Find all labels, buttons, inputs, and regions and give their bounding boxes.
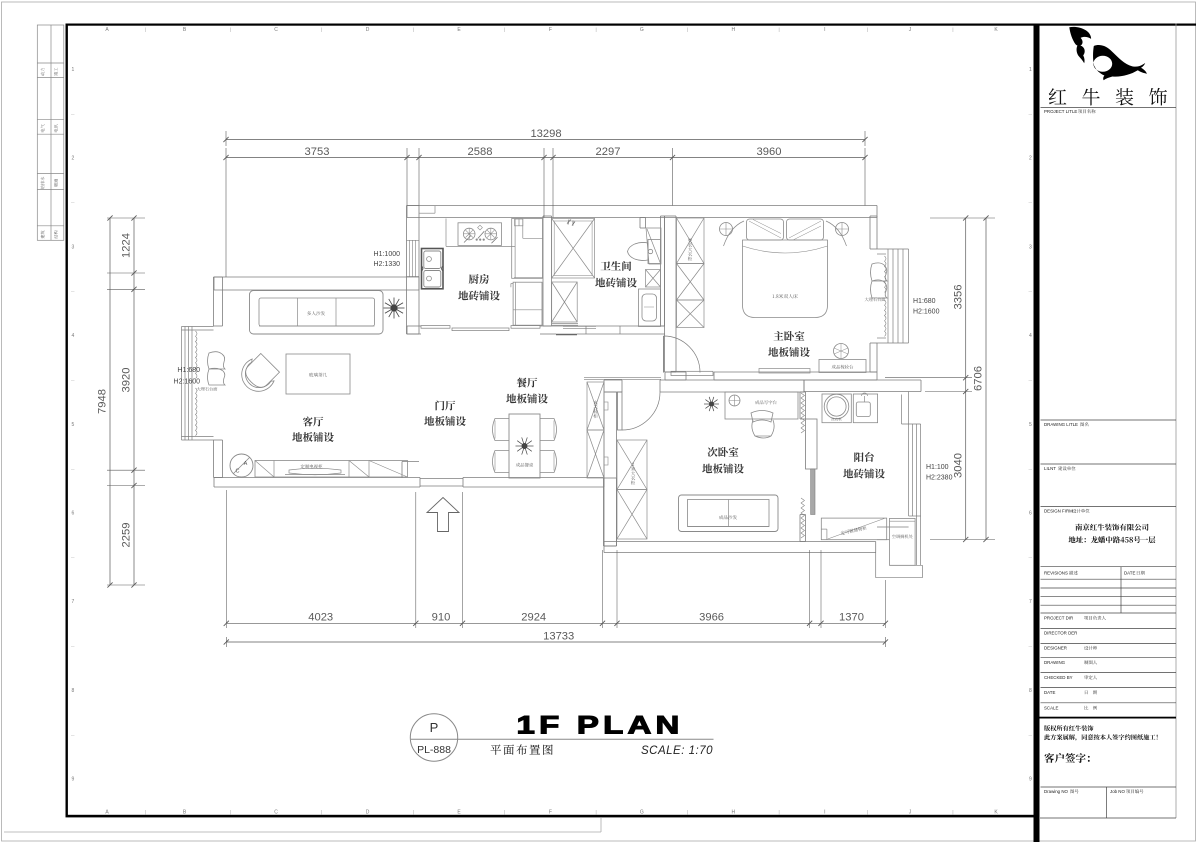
svg-text:6: 6	[72, 511, 75, 517]
svg-text:C: C	[236, 469, 240, 475]
svg-text:—: —	[71, 467, 75, 471]
svg-text:H2:1330: H2:1330	[374, 261, 401, 268]
svg-text:3966: 3966	[699, 612, 724, 624]
svg-text:5: 5	[1029, 422, 1032, 428]
svg-text:—: —	[1029, 733, 1033, 737]
svg-text:|: |	[504, 27, 505, 32]
svg-text:F: F	[549, 810, 552, 816]
svg-text:—: —	[1029, 467, 1033, 471]
svg-text:9: 9	[72, 777, 75, 783]
svg-text:—: —	[71, 378, 75, 382]
svg-text:|: |	[413, 27, 414, 32]
svg-text:|: |	[778, 27, 779, 32]
svg-text:DATE: DATE	[1124, 571, 1135, 576]
svg-text:H2:1600: H2:1600	[913, 309, 940, 316]
svg-text:6706: 6706	[973, 366, 985, 391]
svg-text:C: C	[274, 810, 278, 816]
svg-text:CHECKED BY: CHECKED BY	[1044, 675, 1073, 680]
svg-text:|: |	[687, 27, 688, 32]
svg-text:13733: 13733	[543, 631, 574, 643]
svg-text:Job NO: Job NO	[1110, 789, 1125, 794]
svg-text:—: —	[1029, 378, 1033, 382]
svg-text:4: 4	[72, 333, 75, 339]
svg-text:3920: 3920	[121, 368, 133, 393]
svg-text:|: |	[952, 27, 953, 32]
svg-text:H: H	[731, 810, 735, 816]
svg-text:|: |	[687, 810, 688, 815]
svg-text:7: 7	[1029, 599, 1032, 605]
svg-text:C: C	[274, 27, 278, 33]
svg-text:5: 5	[72, 422, 75, 428]
svg-text:DRAWING: DRAWING	[1044, 660, 1066, 665]
svg-text:P: P	[430, 720, 439, 735]
svg-text:|: |	[230, 810, 231, 815]
svg-text:8: 8	[1029, 688, 1032, 694]
svg-text:G: G	[640, 27, 644, 33]
svg-text:Drawing NO: Drawing NO	[1044, 789, 1068, 794]
svg-text:F: F	[549, 27, 552, 33]
svg-text:3040: 3040	[953, 453, 965, 478]
svg-text:—: —	[71, 112, 75, 116]
svg-text:I: I	[824, 27, 825, 33]
svg-text:8: 8	[72, 688, 75, 694]
svg-text:2: 2	[1029, 156, 1032, 162]
svg-text:H1:680: H1:680	[177, 367, 200, 374]
svg-text:13298: 13298	[530, 128, 561, 140]
svg-text:I: I	[824, 810, 825, 816]
svg-text:REVISIONS: REVISIONS	[1044, 571, 1068, 576]
svg-text:2297: 2297	[596, 146, 621, 158]
svg-text:9: 9	[1029, 777, 1032, 783]
svg-text:—: —	[71, 556, 75, 560]
svg-text:DESIGNER: DESIGNER	[1044, 646, 1067, 651]
svg-text:2924: 2924	[521, 612, 546, 624]
svg-text:3960: 3960	[757, 146, 782, 158]
svg-text:4023: 4023	[308, 612, 333, 624]
svg-text:|: |	[504, 810, 505, 815]
svg-text:PL-888: PL-888	[417, 744, 451, 756]
svg-text:H2:1600: H2:1600	[174, 379, 201, 386]
svg-text:SCALE: 1:70: SCALE: 1:70	[641, 745, 713, 757]
svg-text:7948: 7948	[97, 389, 109, 414]
svg-text:H1:680: H1:680	[913, 298, 936, 305]
svg-text:|: |	[952, 810, 953, 815]
svg-text:G: G	[640, 810, 644, 816]
svg-text:1: 1	[72, 67, 75, 73]
svg-text:PROJECT LITLE: PROJECT LITLE	[1044, 109, 1077, 114]
svg-text:|: |	[867, 27, 868, 32]
svg-text:H: H	[731, 27, 735, 33]
svg-text:D: D	[366, 810, 370, 816]
svg-text:—: —	[1029, 201, 1033, 205]
svg-text:1370: 1370	[839, 612, 864, 624]
svg-text:910: 910	[432, 612, 451, 624]
svg-text:H1:100: H1:100	[926, 464, 949, 471]
svg-text:A: A	[244, 461, 248, 467]
svg-text:3: 3	[1029, 244, 1032, 250]
svg-text:4: 4	[1029, 333, 1032, 339]
svg-text:DRAWING LITLE: DRAWING LITLE	[1044, 422, 1078, 427]
svg-text:—: —	[1029, 644, 1033, 648]
svg-text:3: 3	[72, 244, 75, 250]
svg-text:|: |	[321, 27, 322, 32]
svg-text:—: —	[71, 201, 75, 205]
svg-text:—: —	[1029, 112, 1033, 116]
svg-text:2259: 2259	[121, 523, 133, 548]
svg-text:|: |	[596, 27, 597, 32]
svg-text:3753: 3753	[305, 146, 330, 158]
svg-text:—: —	[71, 733, 75, 737]
svg-text:2: 2	[72, 156, 75, 162]
svg-text:H1:1000: H1:1000	[374, 251, 401, 258]
svg-text:—: —	[1029, 556, 1033, 560]
svg-text:DIRECTOR DER: DIRECTOR DER	[1044, 631, 1077, 636]
svg-text:LILNT: LILNT	[1044, 466, 1056, 471]
svg-text:1: 1	[1029, 67, 1032, 73]
svg-text:D: D	[366, 27, 370, 33]
svg-text:2588: 2588	[468, 146, 493, 158]
svg-text:|: |	[778, 810, 779, 815]
svg-text:|: |	[867, 810, 868, 815]
svg-text:—: —	[71, 289, 75, 293]
svg-text:|: |	[596, 810, 597, 815]
svg-text:|: |	[321, 810, 322, 815]
svg-text:|: |	[230, 27, 231, 32]
svg-text:—: —	[1029, 289, 1033, 293]
svg-text:1224: 1224	[121, 233, 133, 258]
svg-text:|: |	[145, 810, 146, 815]
svg-text:|: |	[413, 810, 414, 815]
svg-text:3356: 3356	[953, 285, 965, 310]
svg-text:DATE: DATE	[1044, 690, 1055, 695]
svg-text:|: |	[145, 27, 146, 32]
svg-text:H2:2380: H2:2380	[926, 475, 953, 482]
svg-text:DESIGN FIRM: DESIGN FIRM	[1044, 509, 1073, 514]
svg-text:1F PLAN: 1F PLAN	[517, 712, 684, 739]
svg-text:PROJECT DIR: PROJECT DIR	[1044, 616, 1073, 621]
svg-text:SCALE: SCALE	[1044, 706, 1058, 711]
svg-text:6: 6	[1029, 511, 1032, 517]
svg-text:—: —	[71, 644, 75, 648]
svg-text:7: 7	[72, 599, 75, 605]
